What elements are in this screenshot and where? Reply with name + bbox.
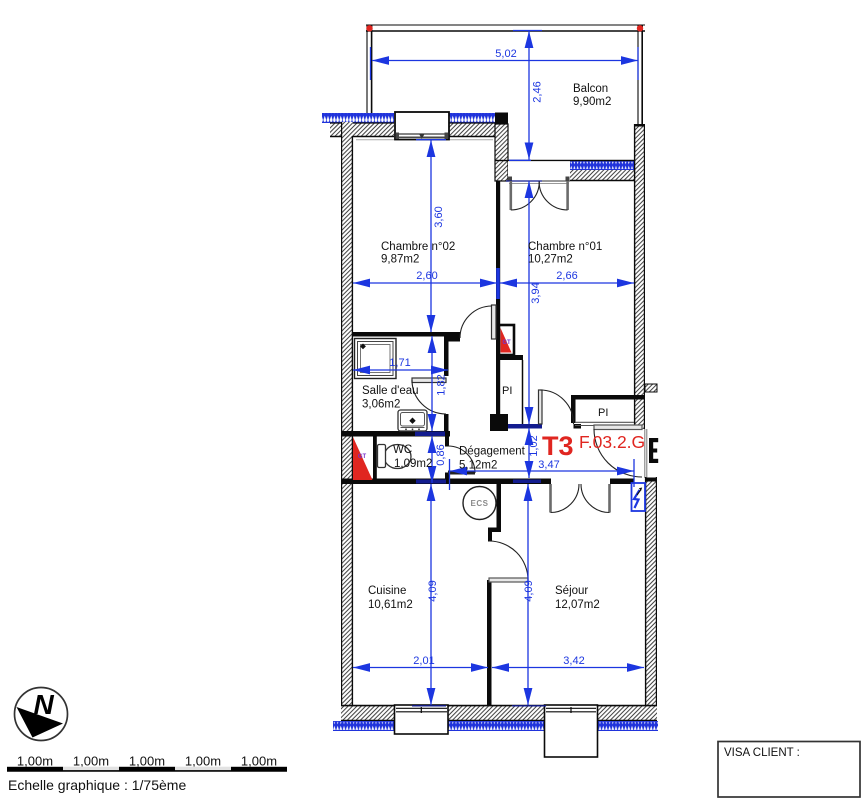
svg-text:Echelle graphique : 1/75ème: Echelle graphique : 1/75ème <box>8 777 186 793</box>
svg-text:2,46: 2,46 <box>532 81 544 102</box>
svg-text:WC: WC <box>393 444 412 456</box>
svg-text:GT: GT <box>502 340 511 346</box>
svg-text:2,66: 2,66 <box>556 270 577 282</box>
svg-text:5,02: 5,02 <box>495 48 516 60</box>
svg-text:3,06m2: 3,06m2 <box>362 399 400 411</box>
svg-text:12,07m2: 12,07m2 <box>555 599 600 611</box>
svg-text:Chambre n°01: Chambre n°01 <box>528 241 602 253</box>
svg-text:2,01: 2,01 <box>413 655 434 667</box>
svg-text:1,00m: 1,00m <box>17 754 53 769</box>
svg-text:ECS: ECS <box>471 499 489 508</box>
svg-text:1,00m: 1,00m <box>73 754 109 769</box>
svg-text:Dégagement: Dégagement <box>459 446 526 458</box>
svg-text:1,71: 1,71 <box>389 357 410 369</box>
svg-text:3,94: 3,94 <box>530 282 542 303</box>
svg-text:T3: T3 <box>542 431 574 461</box>
svg-text:1,00m: 1,00m <box>185 754 221 769</box>
svg-text:PI: PI <box>598 407 608 419</box>
svg-text:9,87m2: 9,87m2 <box>381 254 419 266</box>
svg-text:10,27m2: 10,27m2 <box>528 254 573 266</box>
svg-text:5,12m2: 5,12m2 <box>459 460 497 472</box>
svg-text:1,00m: 1,00m <box>241 754 277 769</box>
svg-text:GT: GT <box>358 454 367 460</box>
svg-text:Cuisine: Cuisine <box>368 585 406 597</box>
svg-text:3,60: 3,60 <box>433 206 445 227</box>
svg-text:1,09m2: 1,09m2 <box>394 458 432 470</box>
svg-text:Balcon: Balcon <box>573 83 608 95</box>
svg-text:Chambre n°02: Chambre n°02 <box>381 241 455 253</box>
svg-text:4,09: 4,09 <box>523 580 535 601</box>
svg-text:Séjour: Séjour <box>555 585 588 597</box>
svg-text:9,90m2: 9,90m2 <box>573 96 611 108</box>
svg-text:0,86: 0,86 <box>435 444 447 465</box>
svg-text:F.03.2.G: F.03.2.G <box>579 432 645 452</box>
svg-text:1,02: 1,02 <box>528 435 540 456</box>
svg-text:2,60: 2,60 <box>416 270 437 282</box>
svg-text:PI: PI <box>502 385 512 397</box>
svg-text:3,42: 3,42 <box>563 655 584 667</box>
svg-text:4,09: 4,09 <box>427 580 439 601</box>
svg-text:1,00m: 1,00m <box>129 754 165 769</box>
svg-text:VISA CLIENT :: VISA CLIENT : <box>724 747 800 759</box>
svg-text:10,61m2: 10,61m2 <box>368 599 413 611</box>
svg-text:Salle d'eau: Salle d'eau <box>362 385 419 397</box>
svg-text:1,82: 1,82 <box>436 374 448 395</box>
